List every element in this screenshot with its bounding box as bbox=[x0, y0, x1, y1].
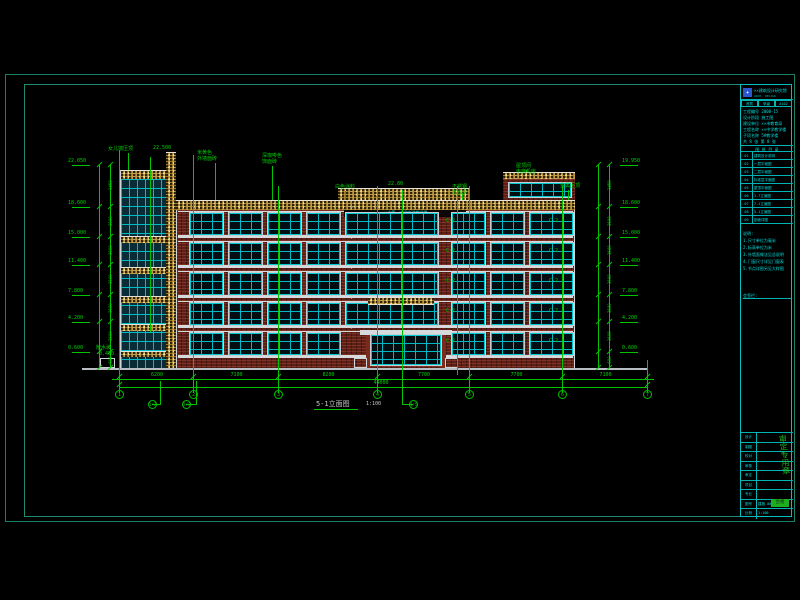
elevation-marker: 4.200 bbox=[622, 315, 648, 321]
axis-bubble: 1 bbox=[115, 390, 124, 399]
elevation-marker: 4.200 bbox=[68, 315, 94, 321]
floor-height-label: 3600 bbox=[102, 218, 120, 226]
window bbox=[530, 333, 563, 355]
elevation-marker-line bbox=[620, 165, 638, 166]
material-callout: 金属压顶 bbox=[560, 183, 604, 195]
callout-leader bbox=[215, 163, 216, 200]
axis-bubble: 7 bbox=[643, 390, 652, 399]
tower-spandrel-band bbox=[121, 296, 166, 303]
tower-spandrel-band bbox=[121, 267, 166, 274]
elevation-marker-line bbox=[72, 265, 90, 266]
window bbox=[190, 273, 223, 295]
parapet-coping bbox=[176, 200, 575, 210]
window bbox=[229, 303, 262, 325]
window bbox=[491, 243, 524, 265]
window bbox=[190, 243, 223, 265]
floor-height-label: 600 bbox=[601, 356, 619, 364]
floor-height-label: 3600 bbox=[601, 247, 619, 255]
axis-bubble: 6 bbox=[558, 390, 567, 399]
floor-level-mark: ▽ bbox=[350, 235, 364, 241]
material-callout: 女儿墙压顶 bbox=[108, 146, 144, 152]
material-callout: 不锈钢 发光字 bbox=[452, 184, 496, 196]
floor-height-label: 3600 bbox=[601, 333, 619, 341]
drawing-title: 5-1立面图 bbox=[316, 399, 350, 409]
vertical-dim-chain bbox=[598, 165, 599, 368]
window-type-mark: C-2 bbox=[446, 218, 464, 224]
window bbox=[268, 303, 301, 325]
callout-leader bbox=[568, 190, 569, 200]
window-type-mark: C-2 bbox=[549, 278, 567, 284]
window bbox=[268, 213, 301, 235]
elevation-marker: 11.400 bbox=[68, 258, 94, 264]
window-type-mark: C-2 bbox=[549, 218, 567, 224]
elevation-marker-line bbox=[72, 207, 90, 208]
floor-height-label: 600 bbox=[102, 356, 120, 364]
offset-axis-bubble: 1/2 bbox=[148, 400, 157, 409]
elevation-marker-line bbox=[72, 237, 90, 238]
window-type-mark: C-2 bbox=[549, 248, 567, 254]
offset-axis-leader bbox=[160, 381, 161, 405]
window bbox=[307, 333, 340, 355]
callout-leader bbox=[128, 153, 129, 170]
axis-bubble: 5 bbox=[465, 390, 474, 399]
window bbox=[530, 303, 563, 325]
tower-spandrel-band bbox=[121, 236, 166, 243]
window bbox=[530, 273, 563, 295]
elevation-marker: 19.950 bbox=[622, 158, 648, 164]
drawing-scale: 1:100 bbox=[366, 401, 381, 407]
tower-leader bbox=[150, 157, 151, 332]
floor-height-label: 3450 bbox=[102, 182, 120, 190]
window bbox=[229, 213, 262, 235]
floor-level-mark: ▽ bbox=[350, 205, 364, 211]
dimension-total-label: 44000 bbox=[366, 380, 396, 386]
elevation-marker-line bbox=[72, 295, 90, 296]
elevation-marker-line bbox=[620, 265, 638, 266]
cad-viewport: ✦××建筑设计研究院ARCH. DESIGN INSTITUTE资质甲级A102… bbox=[0, 0, 800, 600]
window bbox=[563, 303, 573, 325]
axis-bubble: 3 bbox=[274, 390, 283, 399]
dimension-label: 7100 bbox=[595, 372, 617, 378]
elevation-marker-line bbox=[620, 352, 638, 353]
entrance-glazing bbox=[371, 335, 441, 365]
window bbox=[491, 213, 524, 235]
elevation-marker-line bbox=[620, 322, 638, 323]
corridor-glazing bbox=[346, 243, 438, 265]
window-type-mark: C-2 bbox=[446, 308, 464, 314]
callout-leader bbox=[526, 170, 527, 172]
material-callout: 米黄色 外墙面砖 bbox=[197, 150, 241, 162]
window bbox=[530, 213, 563, 235]
floor-height-label: 3600 bbox=[601, 305, 619, 313]
window bbox=[563, 333, 573, 355]
elevation-marker: 0.600 bbox=[622, 345, 648, 351]
window bbox=[530, 243, 563, 265]
lintel-course bbox=[178, 271, 573, 272]
offset-axis-leader bbox=[402, 381, 403, 405]
window bbox=[307, 303, 340, 325]
floor-height-label: 3600 bbox=[601, 218, 619, 226]
dimension-label: 7100 bbox=[226, 372, 248, 378]
sill-course bbox=[178, 325, 573, 328]
tower-gold-pilaster bbox=[166, 152, 176, 368]
elevation-marker-line bbox=[72, 165, 90, 166]
tower-spandrel-band bbox=[121, 170, 166, 179]
material-callout: 22.80 bbox=[388, 181, 432, 193]
offset-axis-bubble: 4/5 bbox=[409, 400, 418, 409]
window bbox=[563, 213, 573, 235]
axis-line bbox=[278, 186, 279, 393]
axis-bubble: 4 bbox=[373, 390, 382, 399]
lintel-course bbox=[178, 241, 573, 242]
elevation-marker: 7.800 bbox=[68, 288, 94, 294]
dimension-label: 7700 bbox=[506, 372, 528, 378]
offset-axis-bubble: 2/3 bbox=[182, 400, 191, 409]
elevation-marker: 11.400 bbox=[622, 258, 648, 264]
dimension-line-2 bbox=[119, 387, 647, 388]
elevation-marker: 7.800 bbox=[622, 288, 648, 294]
drawing-title-underline bbox=[314, 409, 358, 410]
window bbox=[491, 273, 524, 295]
elevation-marker-line bbox=[72, 322, 90, 323]
elevation-marker-line bbox=[620, 295, 638, 296]
window-type-mark: C-2 bbox=[446, 278, 464, 284]
vertical-dim-chain bbox=[99, 165, 100, 368]
window bbox=[229, 273, 262, 295]
material-callout: 22.500 bbox=[153, 145, 179, 151]
elevation-marker-line bbox=[72, 352, 90, 353]
axis-line bbox=[469, 186, 470, 393]
floor-height-label: 3600 bbox=[102, 305, 120, 313]
window-type-mark: C-2 bbox=[549, 338, 567, 344]
window bbox=[307, 213, 340, 235]
window bbox=[268, 243, 301, 265]
elevation-marker: 22.050 bbox=[68, 158, 94, 164]
window bbox=[268, 273, 301, 295]
window bbox=[190, 303, 223, 325]
window bbox=[229, 333, 262, 355]
window bbox=[307, 243, 340, 265]
elevation-drawing: ××市第一中学实验教学楼C-2C-2▽C-2C-2▽C-2C-2▽C-2C-2▽… bbox=[0, 0, 800, 600]
elevation-marker-line bbox=[620, 207, 638, 208]
elevation-marker: 15.000 bbox=[622, 230, 648, 236]
window bbox=[190, 333, 223, 355]
ground-note: 散水坡 -0.450 bbox=[96, 345, 130, 357]
window-type-mark: C-2 bbox=[446, 248, 464, 254]
floor-height-label: 3600 bbox=[601, 276, 619, 284]
floor-height-label: 3600 bbox=[102, 276, 120, 284]
entrance-step-left bbox=[354, 358, 367, 368]
window bbox=[307, 273, 340, 295]
offset-axis-leader bbox=[196, 381, 197, 405]
axis-line bbox=[193, 155, 194, 393]
callout-leader bbox=[462, 193, 463, 200]
axis-line bbox=[377, 186, 378, 393]
elevation-marker: 0.600 bbox=[68, 345, 94, 351]
dimension-label: 6200 bbox=[146, 372, 168, 378]
floor-height-label: 3600 bbox=[102, 247, 120, 255]
ground-line bbox=[82, 368, 648, 370]
tower-spandrel-band bbox=[121, 324, 166, 331]
material-callout: 白色涂料 bbox=[335, 184, 379, 196]
facade-left-edge bbox=[176, 200, 177, 368]
corridor-glazing bbox=[346, 273, 438, 295]
dimension-label: 7700 bbox=[413, 372, 435, 378]
window bbox=[268, 333, 301, 355]
callout-leader bbox=[345, 191, 346, 200]
corridor-glazing bbox=[346, 213, 438, 235]
floor-level-mark: ▽ bbox=[350, 265, 364, 271]
floor-level-mark: ▽ bbox=[350, 325, 364, 331]
window bbox=[190, 213, 223, 235]
dimension-label: 8200 bbox=[318, 372, 340, 378]
tower-left-edge bbox=[120, 170, 121, 368]
window-type-mark: C-2 bbox=[549, 308, 567, 314]
elevation-marker-line bbox=[620, 237, 638, 238]
callout-leader bbox=[272, 166, 273, 200]
elevation-marker: 15.000 bbox=[68, 230, 94, 236]
elevation-marker: 18.600 bbox=[68, 200, 94, 206]
sill-course bbox=[178, 265, 573, 268]
sill-course bbox=[178, 235, 573, 238]
corridor-glazing bbox=[346, 303, 438, 325]
entrance-axis-line bbox=[402, 190, 403, 401]
floor-level-mark: ▽ bbox=[350, 295, 364, 301]
window-type-mark: C-2 bbox=[446, 338, 464, 344]
material-callout: 屋顶间 电梯机房 bbox=[516, 163, 560, 175]
window bbox=[491, 333, 524, 355]
window bbox=[229, 243, 262, 265]
elevation-marker: 18.600 bbox=[622, 200, 648, 206]
floor-height-label: 3600 bbox=[102, 333, 120, 341]
window bbox=[563, 273, 573, 295]
window bbox=[563, 243, 573, 265]
facade-right-edge bbox=[574, 200, 575, 368]
window bbox=[491, 303, 524, 325]
material-callout: 深咖啡色 饰面砖 bbox=[262, 153, 306, 165]
